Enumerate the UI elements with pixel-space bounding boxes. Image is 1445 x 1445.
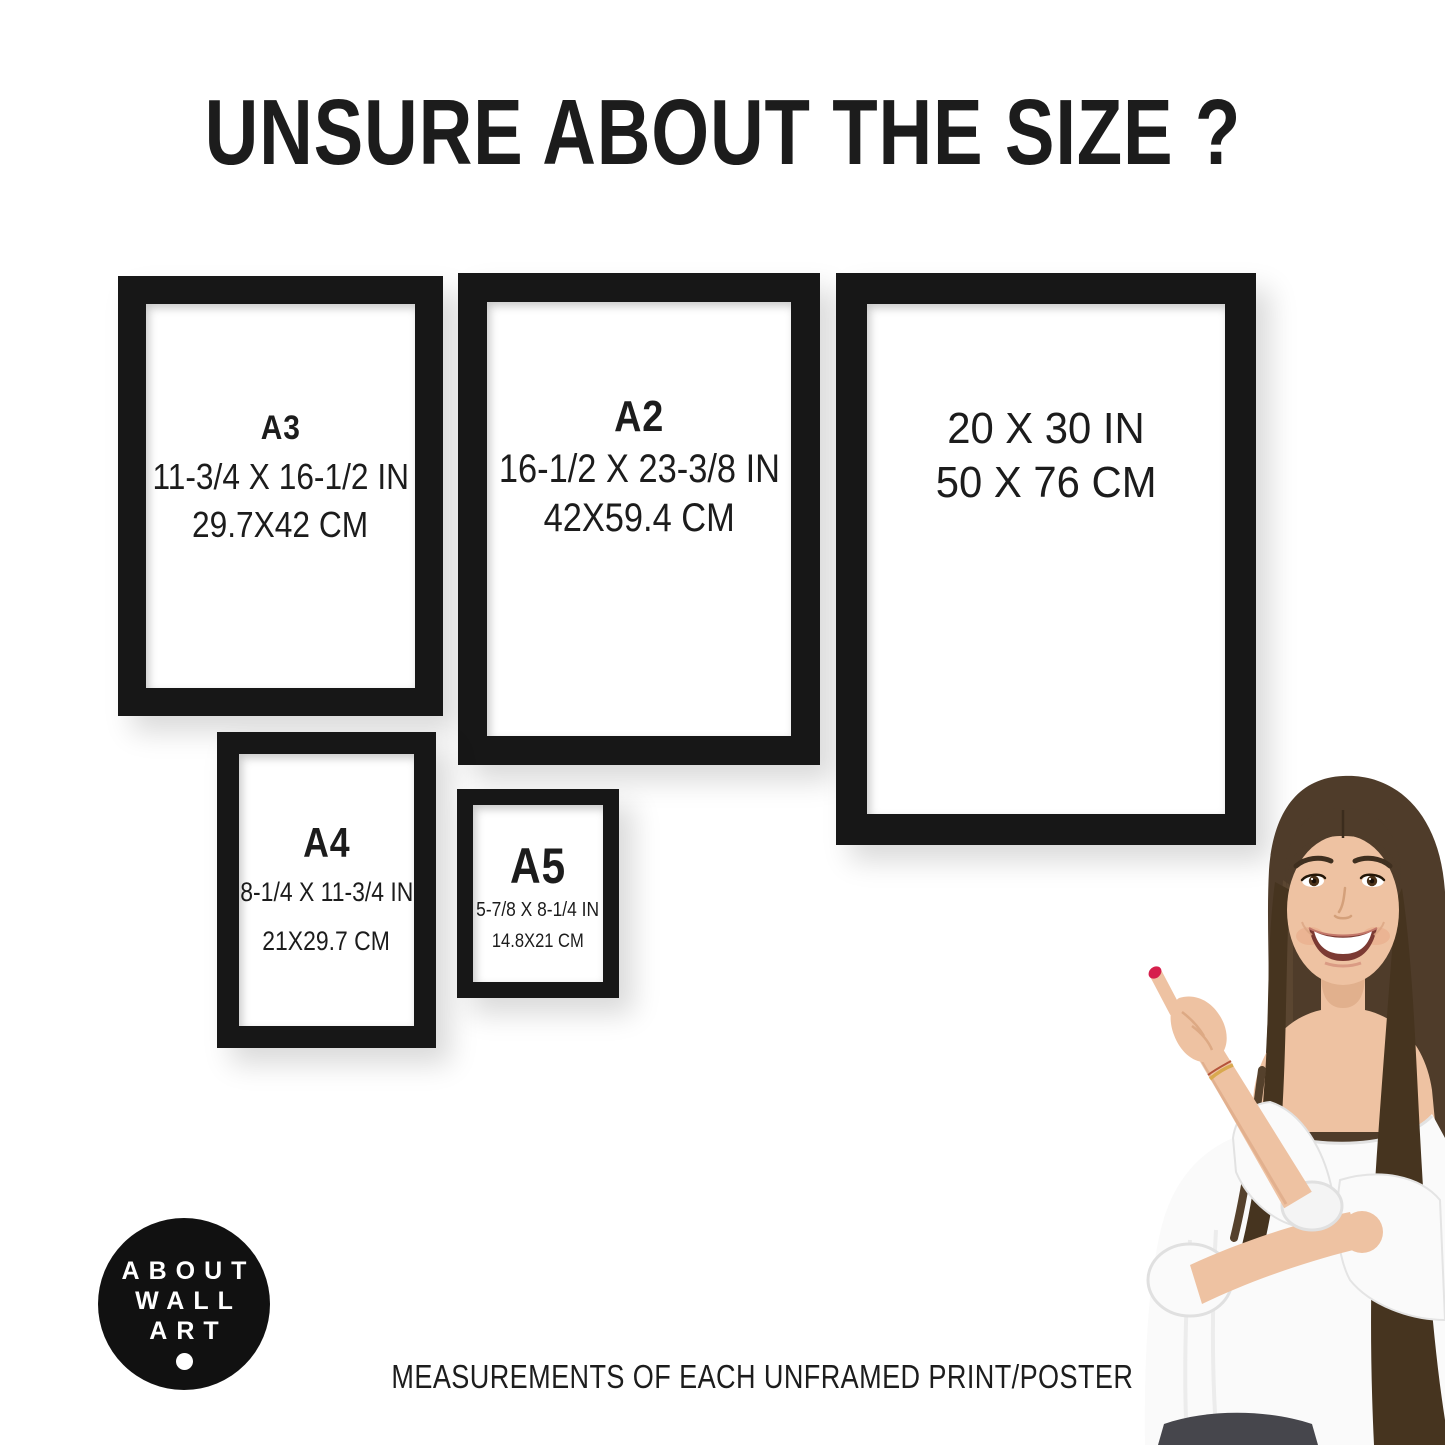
brand-logo: ABOUT WALL ART bbox=[98, 1218, 270, 1390]
frame-a3-size-cm: 29.7X42 CM bbox=[180, 501, 380, 549]
frame-a3-label-text: A3 bbox=[260, 410, 300, 447]
frame-20x30-inches-text: 20 X 30 IN bbox=[947, 402, 1145, 456]
frame-a2-size-inches: 16-1/2 X 23-3/8 IN bbox=[476, 445, 803, 494]
frame-a5-label-text: A5 bbox=[510, 839, 566, 894]
frame-a4: A4 8-1/4 X 11-3/4 IN 21X29.7 CM bbox=[217, 732, 436, 1048]
frame-a3-size-inches: 11-3/4 X 16-1/2 IN bbox=[135, 453, 427, 501]
logo-dot bbox=[176, 1353, 193, 1370]
frame-a3: A3 11-3/4 X 16-1/2 IN 29.7X42 CM bbox=[118, 276, 443, 716]
frame-a5-cm-text: 14.8X21 CM bbox=[492, 930, 584, 954]
woman-pointing-photo bbox=[1040, 760, 1445, 1445]
page-title-text: UNSURE ABOUT THE SIZE ? bbox=[204, 84, 1241, 182]
page-title: UNSURE ABOUT THE SIZE ? bbox=[0, 84, 1445, 182]
frame-a4-size-cm: 21X29.7 CM bbox=[251, 925, 401, 957]
frame-a5-size-inches: 5-7/8 X 8-1/4 IN bbox=[467, 898, 608, 923]
frame-a2-size-cm: 42X59.4 CM bbox=[528, 494, 750, 543]
frame-a2-label-text: A2 bbox=[614, 393, 664, 441]
frame-a3-inches-text: 11-3/4 X 16-1/2 IN bbox=[152, 453, 409, 501]
caption: MEASUREMENTS OF EACH UNFRAMED PRINT/POST… bbox=[310, 1358, 1000, 1396]
frame-a2-inches-text: 16-1/2 X 23-3/8 IN bbox=[498, 445, 779, 494]
caption-text: MEASUREMENTS OF EACH UNFRAMED PRINT/POST… bbox=[391, 1358, 1133, 1396]
frame-20x30-size-inches: 20 X 30 IN bbox=[942, 402, 1150, 456]
logo-line-about: ABOUT bbox=[113, 1256, 256, 1286]
logo-line-wall: WALL bbox=[126, 1286, 242, 1316]
frame-a5-label: A5 bbox=[505, 839, 571, 894]
frame-a3-cm-text: 29.7X42 CM bbox=[192, 501, 368, 549]
frame-a2-cm-text: 42X59.4 CM bbox=[543, 494, 734, 543]
frame-20x30-size-cm: 50 X 76 CM bbox=[930, 456, 1162, 510]
frame-a4-cm-text: 21X29.7 CM bbox=[263, 925, 391, 957]
frame-a5-size-cm: 14.8X21 CM bbox=[485, 930, 591, 954]
frame-a4-inches-text: 8-1/4 X 11-3/4 IN bbox=[240, 876, 413, 908]
frame-a5-inches-text: 5-7/8 X 8-1/4 IN bbox=[477, 898, 600, 923]
frame-a2-label: A2 bbox=[610, 393, 668, 441]
face bbox=[1286, 808, 1401, 985]
logo-line-art: ART bbox=[140, 1316, 227, 1346]
frame-a5: A5 5-7/8 X 8-1/4 IN 14.8X21 CM bbox=[457, 789, 619, 998]
frame-a2: A2 16-1/2 X 23-3/8 IN 42X59.4 CM bbox=[458, 273, 820, 765]
frame-a4-size-inches: 8-1/4 X 11-3/4 IN bbox=[225, 876, 429, 908]
frame-a4-label-text: A4 bbox=[303, 820, 350, 866]
size-guide-page: UNSURE ABOUT THE SIZE ? A3 11-3/4 X 16-1… bbox=[0, 0, 1445, 1445]
frame-a3-label: A3 bbox=[258, 410, 303, 447]
frame-a4-label: A4 bbox=[299, 820, 355, 866]
frame-20x30-cm-text: 50 X 76 CM bbox=[936, 456, 1157, 510]
